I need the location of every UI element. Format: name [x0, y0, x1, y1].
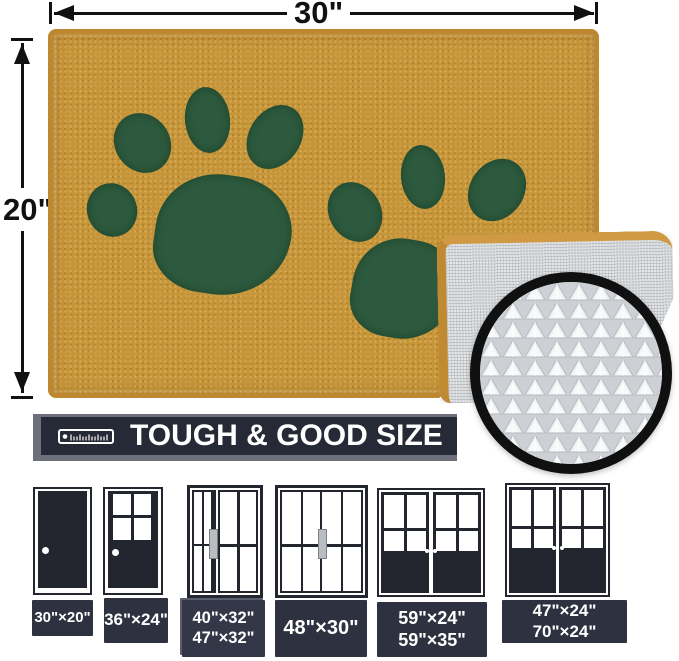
french-leaf [433, 492, 481, 593]
door-icon-half-glass [103, 487, 163, 595]
window-munion [301, 492, 304, 591]
window-munion [456, 495, 459, 551]
window-munion [384, 528, 426, 531]
window-munion [404, 495, 407, 551]
french-leaf [559, 487, 606, 593]
size-label: 48"×30" [275, 600, 367, 657]
window-munion [322, 544, 361, 547]
doorknob-icon [560, 546, 564, 550]
window-munion [113, 515, 151, 518]
window-munion [220, 544, 256, 547]
window-munion [531, 490, 534, 548]
size-label: 59"×24" 59"×35" [377, 602, 487, 657]
arrowhead-left-icon [54, 5, 74, 21]
height-arrow-bottom-tick [11, 396, 33, 399]
door-window [436, 495, 478, 551]
door-window [562, 490, 603, 548]
paw-toe [235, 94, 315, 179]
arrowhead-up-icon [14, 44, 30, 64]
door-icon-slider-asymmetric [187, 485, 263, 598]
window-munion [562, 526, 603, 529]
door-handle [318, 529, 327, 559]
window-munion [436, 528, 478, 531]
banner-title: TOUGH & GOOD SIZE [130, 421, 443, 451]
size-label: 47"×24" 70"×24" [502, 600, 627, 643]
doorknob-icon [425, 549, 429, 553]
paw-pad [147, 166, 298, 304]
arrowhead-right-icon [574, 5, 594, 21]
size-text: 47"×32" [193, 629, 255, 648]
door-window [512, 490, 553, 548]
size-label: 36"×24" [104, 598, 168, 643]
size-text: 47"×24" [533, 601, 597, 621]
height-dimension-label: 20" [0, 188, 55, 231]
width-dimension-label: 30" [287, 0, 350, 28]
anti-slip-pattern [480, 282, 662, 464]
ruler-icon [58, 429, 114, 444]
doorknob-icon [112, 549, 119, 556]
paw-toe [79, 176, 144, 244]
paw-toe [317, 172, 393, 252]
size-label: 30"×20" [32, 600, 93, 636]
size-text: 70"×24" [533, 622, 597, 642]
window-munion [202, 492, 204, 591]
paw-toe [398, 143, 448, 211]
door-leaf [38, 491, 87, 588]
door-window [113, 494, 151, 540]
arrowhead-down-icon [14, 372, 30, 392]
door-icon-slider [275, 485, 368, 598]
slider-panel [280, 490, 323, 593]
french-leaf [381, 492, 429, 593]
product-infographic: 30" 20" [0, 0, 679, 661]
size-text: 30"×20" [34, 609, 90, 627]
french-leaf [509, 487, 556, 593]
paw-toe [182, 85, 234, 155]
doorknob-icon [552, 546, 556, 550]
size-text: 36"×24" [104, 610, 168, 630]
height-arrow-top-tick [11, 38, 33, 41]
door-leaf [108, 491, 158, 588]
banner: TOUGH & GOOD SIZE [41, 417, 457, 455]
size-text: 59"×24" [398, 608, 466, 629]
door-icon-french-double-wide [505, 483, 610, 597]
window-munion [512, 526, 553, 529]
door-window [384, 495, 426, 551]
window-munion [237, 492, 240, 591]
size-text: 59"×35" [398, 630, 466, 651]
paw-toe [102, 102, 183, 184]
paw-toe [456, 147, 538, 232]
width-arrow-right-tick [595, 2, 598, 24]
door-handle [209, 529, 218, 559]
door-icon-french-double [377, 488, 485, 597]
width-arrow-left-tick [49, 2, 52, 24]
size-text: 48"×30" [283, 617, 358, 641]
window-munion [581, 490, 584, 548]
window-munion [282, 544, 321, 547]
size-text: 40"×32" [193, 609, 255, 628]
slider-panel-wide [218, 490, 258, 593]
size-label: 40"×32" 47"×32" [182, 600, 265, 657]
window-munion [341, 492, 344, 591]
door-icon-single-solid [33, 487, 92, 595]
doorknob-icon [433, 549, 437, 553]
backing-texture-magnifier [470, 272, 672, 474]
doorknob-icon [42, 547, 49, 554]
